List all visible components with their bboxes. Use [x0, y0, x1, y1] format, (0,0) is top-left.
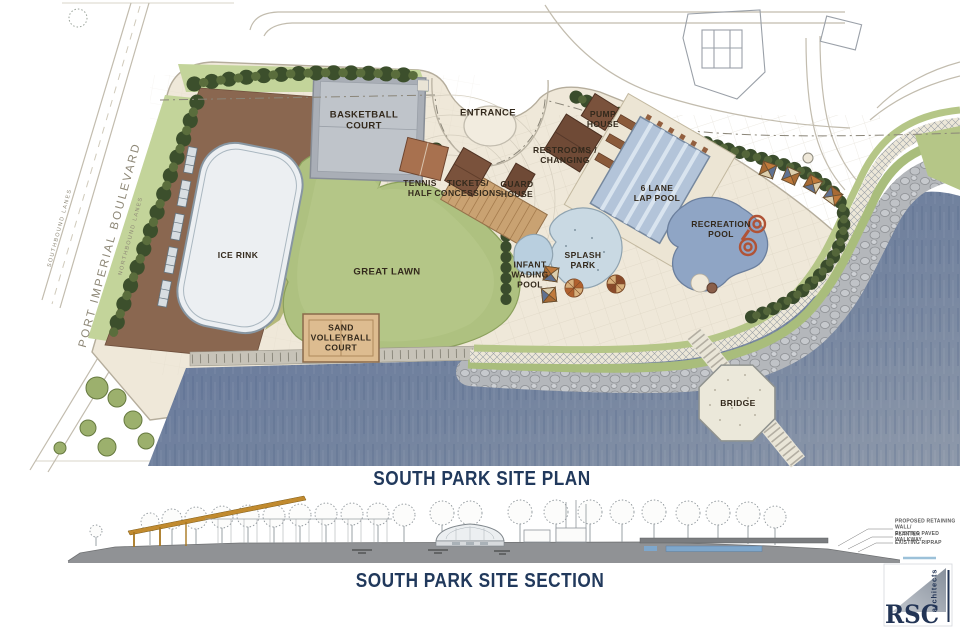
label-ice-rink: ICE RINK [218, 250, 259, 260]
label-recreation-pool: RECREATION POOL [691, 219, 751, 239]
label-basketball-court: BASKETBALL COURT [330, 110, 398, 133]
logo-descriptor: architects [930, 569, 939, 613]
annotation-riprap: EXISTING RIPRAP [895, 540, 942, 546]
label-sand-volleyball: SAND VOLLEYBALL COURT [311, 323, 372, 354]
site-section-title: SOUTH PARK SITE SECTION [356, 569, 605, 593]
label-splash-park: SPLASH PARK [565, 250, 602, 270]
section-buildings [524, 528, 586, 542]
label-restrooms-changing: RESTROOMS / CHANGING [533, 145, 597, 165]
section-leaders [838, 529, 893, 552]
label-pump-house: PUMP HOUSE [587, 109, 619, 129]
label-bridge: BRIDGE [720, 398, 755, 408]
plan-artwork [0, 0, 960, 639]
label-entrance: ENTRANCE [460, 107, 516, 118]
label-guard-house: GUARD HOUSE [500, 179, 533, 199]
label-tickets-concessions: TICKETS/ CONCESSIONS [434, 178, 501, 198]
label-lap-pool: 6 LANE LAP POOL [634, 183, 681, 203]
label-great-lawn: GREAT LAWN [353, 266, 420, 277]
section-pool-small [644, 546, 657, 551]
site-plan-title: SOUTH PARK SITE PLAN [373, 467, 590, 491]
section-pool-long [666, 546, 762, 552]
section-boardwalk [640, 538, 828, 543]
site-plan-board: PORT IMPERIAL BOULEVARD SOUTHBOUND LANES… [0, 0, 960, 639]
section-pavilion [436, 524, 504, 546]
label-infant-wading-pool: INFANT WADING POOL [511, 260, 548, 291]
section-drawing [68, 496, 936, 563]
label-tennis-half: TENNIS HALF [403, 178, 437, 198]
